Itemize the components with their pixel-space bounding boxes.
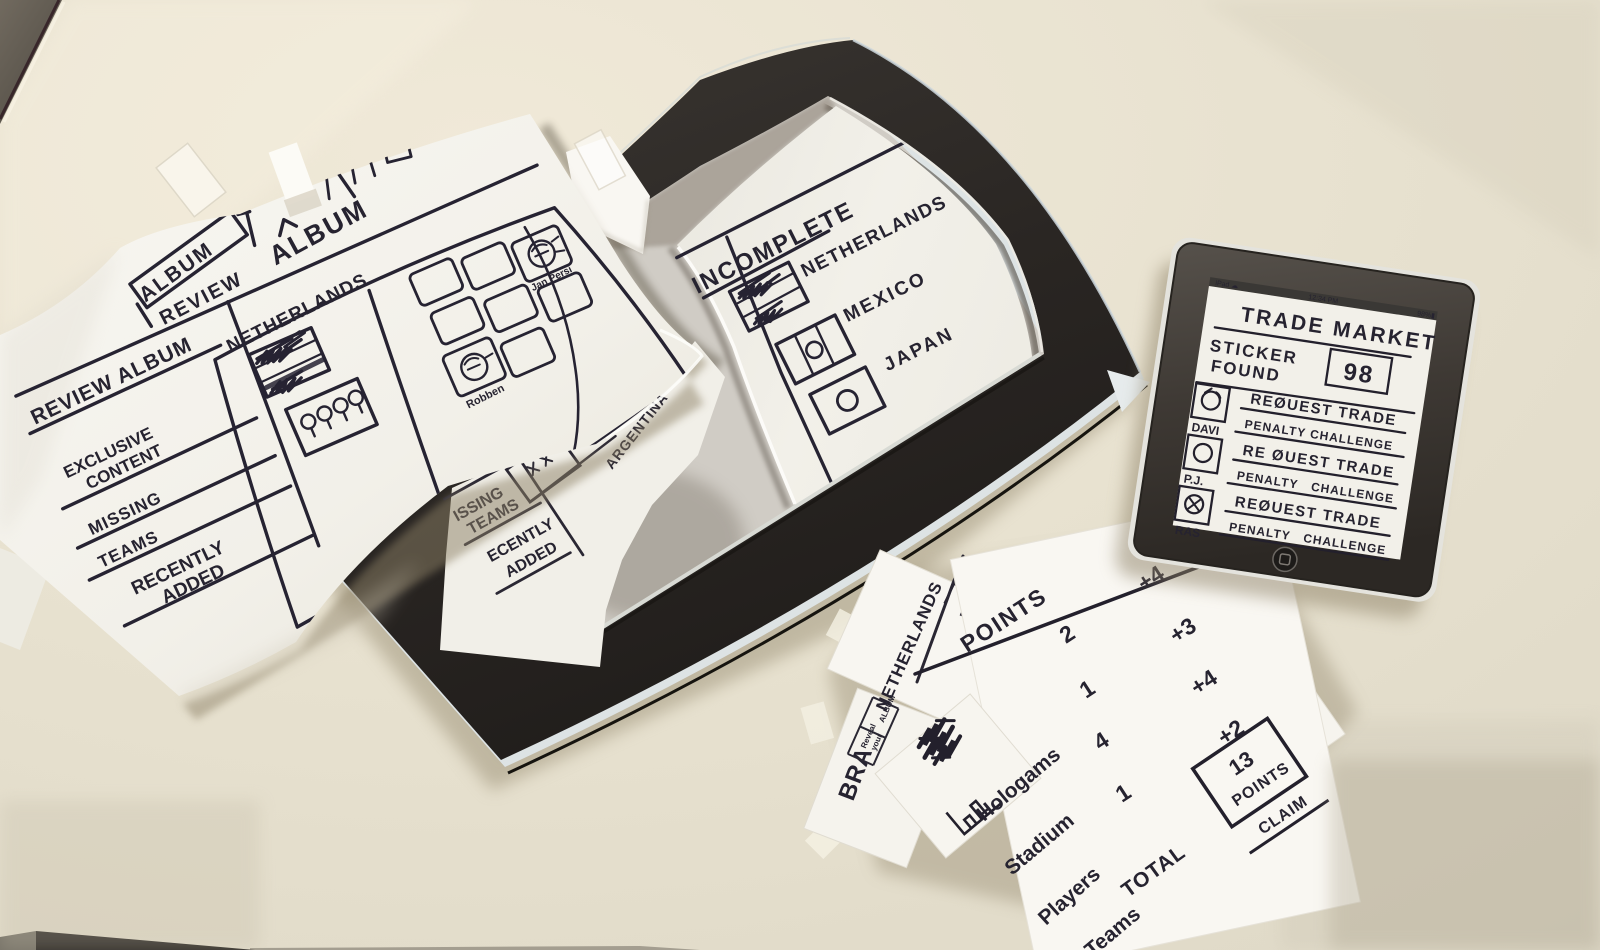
svg-text:98: 98 xyxy=(1342,358,1376,389)
svg-text:P.J.: P.J. xyxy=(1183,471,1205,488)
